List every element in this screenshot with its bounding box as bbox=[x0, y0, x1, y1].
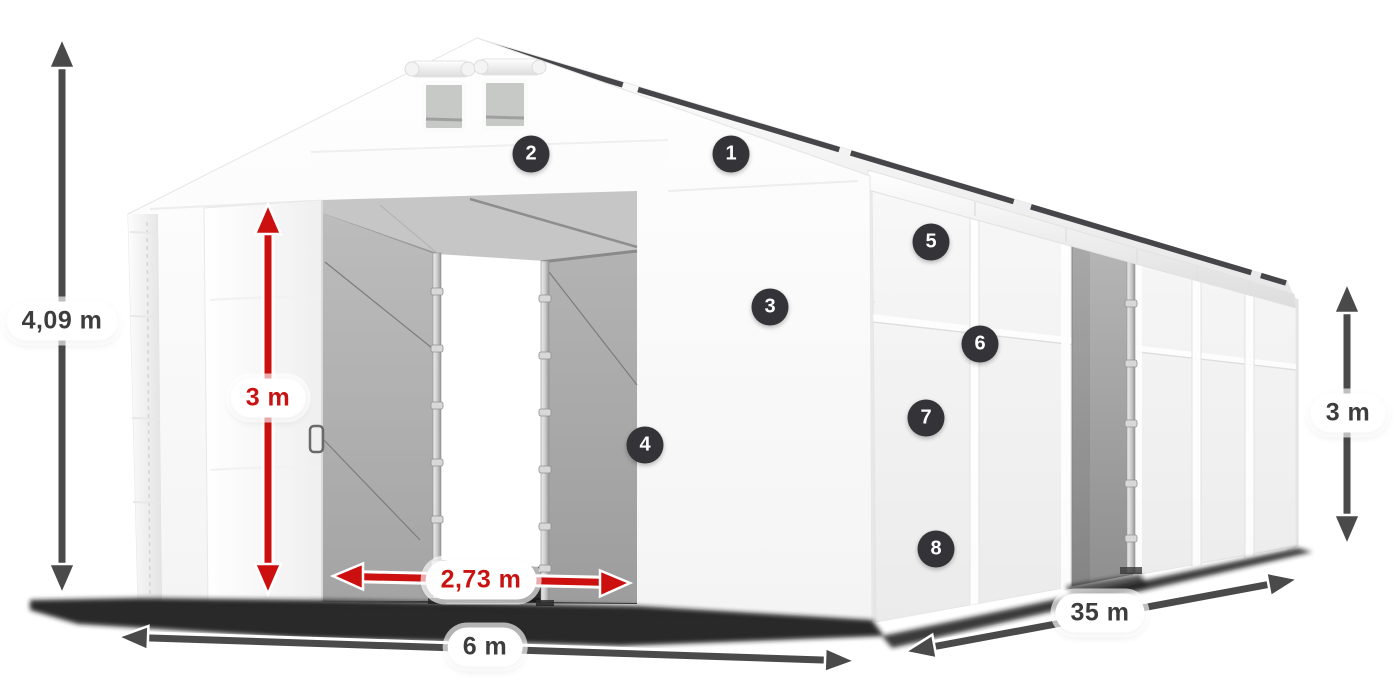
dimension-label-side-height: 3 m bbox=[1311, 394, 1386, 433]
front-door-opening bbox=[322, 191, 637, 606]
dimension-label-door-width: 2,73 m bbox=[426, 561, 537, 600]
dimension-label-length: 35 m bbox=[1056, 594, 1145, 633]
dimension-label-door-height: 3 m bbox=[231, 379, 306, 418]
feature-marker-7: 7 bbox=[908, 400, 945, 437]
dimension-label-total-height: 4,09 m bbox=[7, 302, 118, 341]
tent-illustration bbox=[0, 0, 1400, 700]
feature-marker-4: 4 bbox=[627, 427, 664, 464]
dimension-label-width: 6 m bbox=[448, 628, 523, 667]
feature-marker-2: 2 bbox=[513, 136, 550, 173]
product-diagram: 4,09 m 3 m 2,73 m 6 m 35 m 3 m 1 2 3 4 5… bbox=[0, 0, 1400, 700]
feature-marker-3: 3 bbox=[752, 289, 789, 326]
feature-marker-5: 5 bbox=[913, 224, 950, 261]
side-door-opening bbox=[1072, 239, 1142, 586]
feature-marker-1: 1 bbox=[713, 136, 750, 173]
feature-marker-6: 6 bbox=[962, 326, 999, 363]
feature-marker-8: 8 bbox=[918, 531, 955, 568]
